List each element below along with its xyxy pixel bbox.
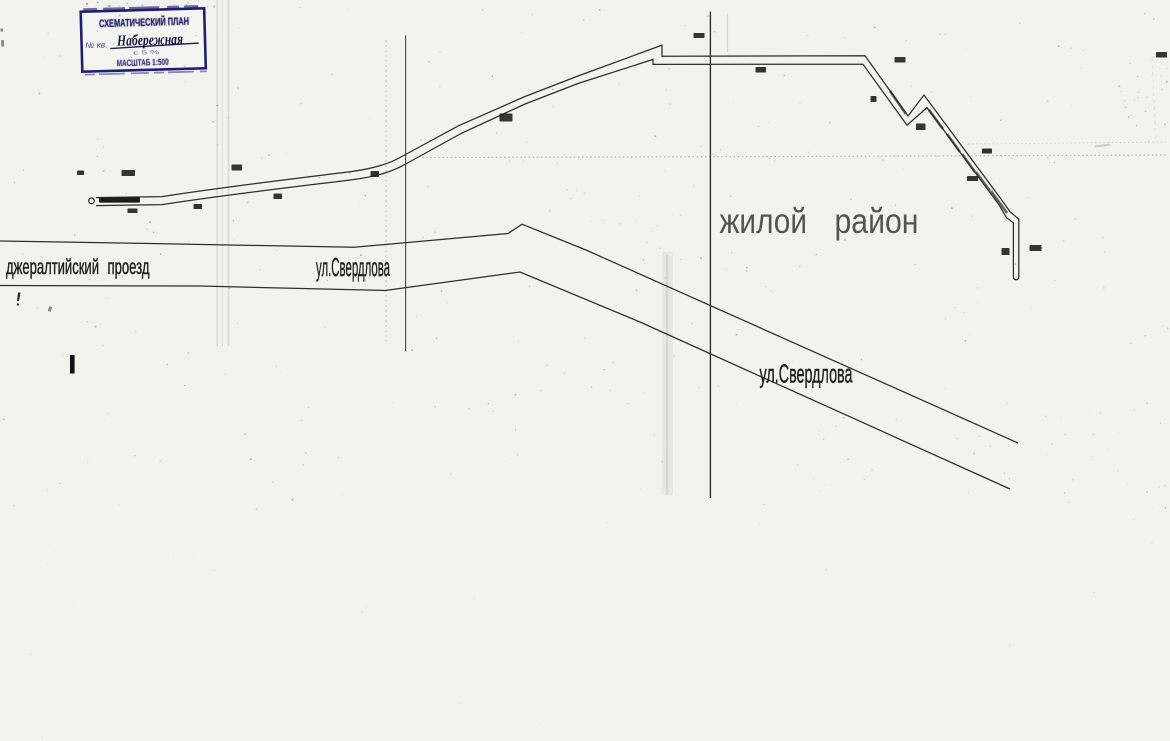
- svg-text:МАСШТАБ 1:500: МАСШТАБ 1:500: [116, 57, 168, 68]
- svg-text:СХЕМАТИЧЕСКИЙ ПЛАН: СХЕМАТИЧЕСКИЙ ПЛАН: [99, 15, 189, 31]
- svg-text:с 5 %: с 5 %: [133, 50, 160, 57]
- svg-text:Набережная: Набережная: [116, 31, 183, 50]
- svg-text:жилой: жилой: [720, 201, 808, 241]
- svg-text:джералтийский: джералтийский: [6, 256, 99, 279]
- svg-text:проезд: проезд: [108, 256, 150, 279]
- svg-text:ул.Свердлова: ул.Свердлова: [316, 252, 390, 282]
- svg-text:№ кв.: № кв.: [85, 39, 108, 50]
- svg-text:район: район: [835, 201, 919, 241]
- svg-text:ул.Свердлова: ул.Свердлова: [760, 359, 853, 389]
